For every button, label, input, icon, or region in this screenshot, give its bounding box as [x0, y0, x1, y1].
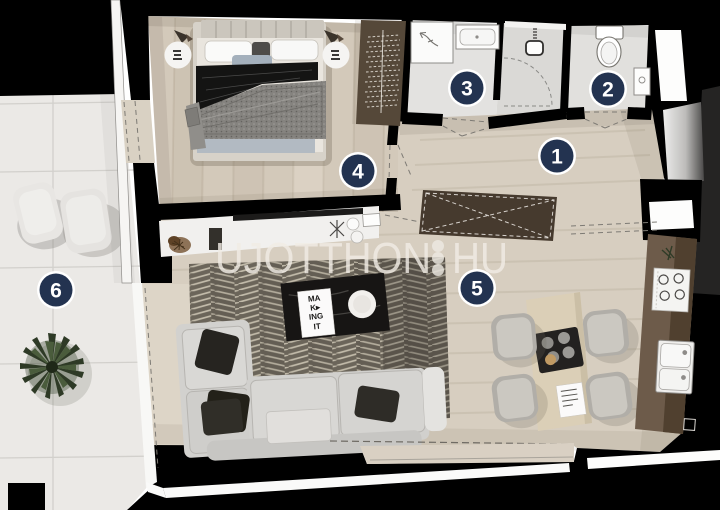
- svg-text:1: 1: [551, 146, 563, 169]
- svg-text:IT: IT: [313, 322, 321, 332]
- svg-text:4: 4: [352, 161, 364, 184]
- svg-text:5: 5: [471, 278, 483, 301]
- svg-text:6: 6: [50, 280, 62, 303]
- svg-text:2: 2: [602, 79, 614, 102]
- svg-text:3: 3: [461, 78, 473, 101]
- svg-text:ING: ING: [309, 311, 324, 321]
- svg-text:UJOTTHON: UJOTTHON: [215, 234, 431, 283]
